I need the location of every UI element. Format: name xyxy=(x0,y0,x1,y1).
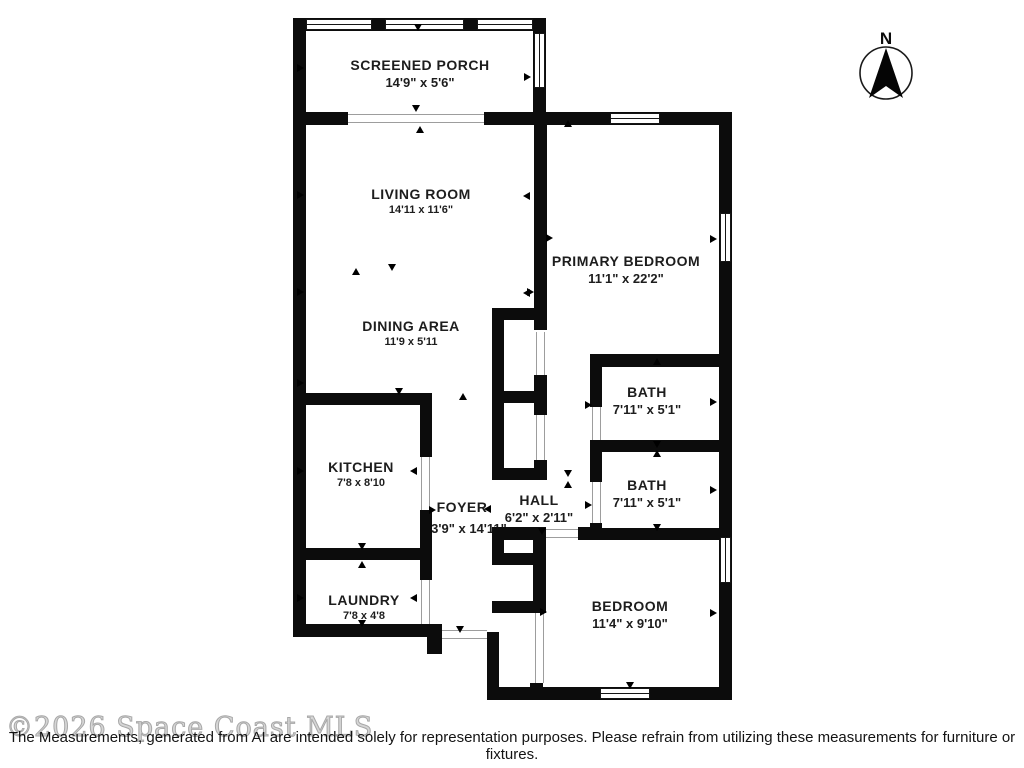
door-opening xyxy=(536,332,545,375)
door-marker-icon xyxy=(358,561,366,568)
door-marker-icon xyxy=(653,358,661,365)
door-marker-icon xyxy=(538,528,546,535)
room-name: DINING AREA xyxy=(362,318,460,334)
door-marker-icon xyxy=(527,288,534,296)
disclaimer-text: The Measurements, generated from AI are … xyxy=(0,729,1024,763)
window-pane xyxy=(611,118,659,120)
door-marker-icon xyxy=(297,467,304,475)
wall xyxy=(487,632,499,700)
wall xyxy=(293,624,442,637)
window xyxy=(306,19,372,30)
window xyxy=(610,113,660,124)
wall xyxy=(420,510,432,580)
room-dims: 14'11 x 11'6" xyxy=(371,204,471,216)
window xyxy=(477,19,533,30)
door-marker-icon xyxy=(653,524,661,531)
wall xyxy=(590,528,732,540)
door-marker-icon xyxy=(653,450,661,457)
door-opening xyxy=(545,529,578,538)
door-marker-icon xyxy=(352,268,360,275)
door-opening xyxy=(536,415,545,460)
door-opening xyxy=(535,613,544,683)
door-marker-icon xyxy=(388,264,396,271)
compass-north-label: N xyxy=(880,29,892,48)
wall xyxy=(534,112,547,330)
door-marker-icon xyxy=(653,441,661,448)
door-marker-icon xyxy=(414,24,422,31)
room-name: FOYER xyxy=(437,499,488,515)
room-name: BATH xyxy=(613,477,681,493)
window xyxy=(534,33,545,88)
door-marker-icon xyxy=(297,288,304,296)
door-marker-icon xyxy=(456,626,464,633)
room-label-primary-bedroom: PRIMARY BEDROOM 11'1" x 22'2" xyxy=(552,253,700,286)
wall xyxy=(297,393,432,405)
window-pane xyxy=(725,538,727,582)
door-marker-icon xyxy=(429,506,436,514)
room-dims: 11'9 x 5'11 xyxy=(362,336,460,348)
room-dims: 7'11" x 5'1" xyxy=(613,402,681,417)
room-name: HALL xyxy=(505,492,573,508)
door-opening xyxy=(421,580,430,624)
room-name: LAUNDRY xyxy=(328,592,399,608)
door-marker-icon xyxy=(297,594,304,602)
room-name: SCREENED PORCH xyxy=(350,57,489,73)
door-opening xyxy=(421,457,430,510)
room-label-hall: HALL 6'2" x 2'11" xyxy=(505,492,573,525)
door-opening xyxy=(348,114,484,123)
room-label-bath-lower: BATH 7'11" x 5'1" xyxy=(613,477,681,510)
wall xyxy=(578,527,602,540)
wall xyxy=(427,624,442,654)
door-marker-icon xyxy=(410,467,417,475)
door-opening xyxy=(592,482,601,523)
room-label-screened-porch: SCREENED PORCH 14'9" x 5'6" xyxy=(350,57,489,90)
door-marker-icon xyxy=(459,393,467,400)
room-label-foyer: FOYER xyxy=(437,499,488,515)
room-name: KITCHEN xyxy=(328,459,394,475)
room-dims: 11'4" x 9'10" xyxy=(592,616,669,631)
room-label-living-room: LIVING ROOM 14'11 x 11'6" xyxy=(371,186,471,216)
room-label-laundry: LAUNDRY 7'8 x 4'8 xyxy=(328,592,399,622)
door-marker-icon xyxy=(358,543,366,550)
floor-plan-page: SCREENED PORCH 14'9" x 5'6" LIVING ROOM … xyxy=(0,0,1024,768)
room-dims: 14'9" x 5'6" xyxy=(350,75,489,90)
window-pane xyxy=(539,34,541,87)
door-marker-icon xyxy=(564,470,572,477)
wall xyxy=(590,354,732,367)
door-marker-icon xyxy=(710,609,717,617)
window xyxy=(385,19,464,30)
window-pane xyxy=(478,24,532,26)
door-marker-icon xyxy=(412,105,420,112)
door-marker-icon xyxy=(297,379,304,387)
door-marker-icon xyxy=(395,388,403,395)
wall xyxy=(420,393,432,457)
door-marker-icon xyxy=(585,401,592,409)
room-dims: 7'8 x 8'10 xyxy=(328,477,394,489)
door-marker-icon xyxy=(297,191,304,199)
window-pane xyxy=(307,24,371,26)
wall xyxy=(719,112,732,700)
wall xyxy=(590,452,602,482)
window xyxy=(600,688,650,699)
window xyxy=(720,213,731,262)
door-marker-icon xyxy=(710,235,717,243)
room-label-kitchen: KITCHEN 7'8 x 8'10 xyxy=(328,459,394,489)
wall xyxy=(492,468,547,480)
wall xyxy=(492,601,543,613)
door-marker-icon xyxy=(297,64,304,72)
room-dims: 7'8 x 4'8 xyxy=(328,610,399,622)
room-name: BATH xyxy=(613,384,681,400)
door-marker-icon xyxy=(546,234,553,242)
door-marker-icon xyxy=(626,682,634,689)
door-marker-icon xyxy=(540,608,547,616)
door-opening xyxy=(442,630,487,639)
room-label-bedroom: BEDROOM 11'4" x 9'10" xyxy=(592,598,669,631)
room-dims: 11'1" x 22'2" xyxy=(552,271,700,286)
door-marker-icon xyxy=(564,481,572,488)
door-marker-icon xyxy=(523,192,530,200)
room-label-dining-area: DINING AREA 11'9 x 5'11 xyxy=(362,318,460,348)
door-marker-icon xyxy=(710,486,717,494)
room-name: BEDROOM xyxy=(592,598,669,614)
room-name: PRIMARY BEDROOM xyxy=(552,253,700,269)
room-dims: 6'2" x 2'11" xyxy=(505,510,573,525)
wall xyxy=(492,391,547,403)
door-marker-icon xyxy=(585,501,592,509)
door-marker-icon xyxy=(524,73,531,81)
north-compass-icon: N xyxy=(850,24,926,106)
room-name: LIVING ROOM xyxy=(371,186,471,202)
north-arrow-icon xyxy=(869,48,903,98)
window-pane xyxy=(725,214,727,261)
wall xyxy=(590,354,602,407)
room-dims: 7'11" x 5'1" xyxy=(613,495,681,510)
wall xyxy=(530,683,543,693)
door-marker-icon xyxy=(710,398,717,406)
window-pane xyxy=(386,24,463,26)
door-marker-icon xyxy=(416,126,424,133)
window-pane xyxy=(601,693,649,695)
window xyxy=(720,537,731,583)
room-label-bath-upper: BATH 7'11" x 5'1" xyxy=(613,384,681,417)
door-marker-icon xyxy=(564,120,572,127)
wall xyxy=(590,440,732,452)
door-marker-icon xyxy=(410,594,417,602)
